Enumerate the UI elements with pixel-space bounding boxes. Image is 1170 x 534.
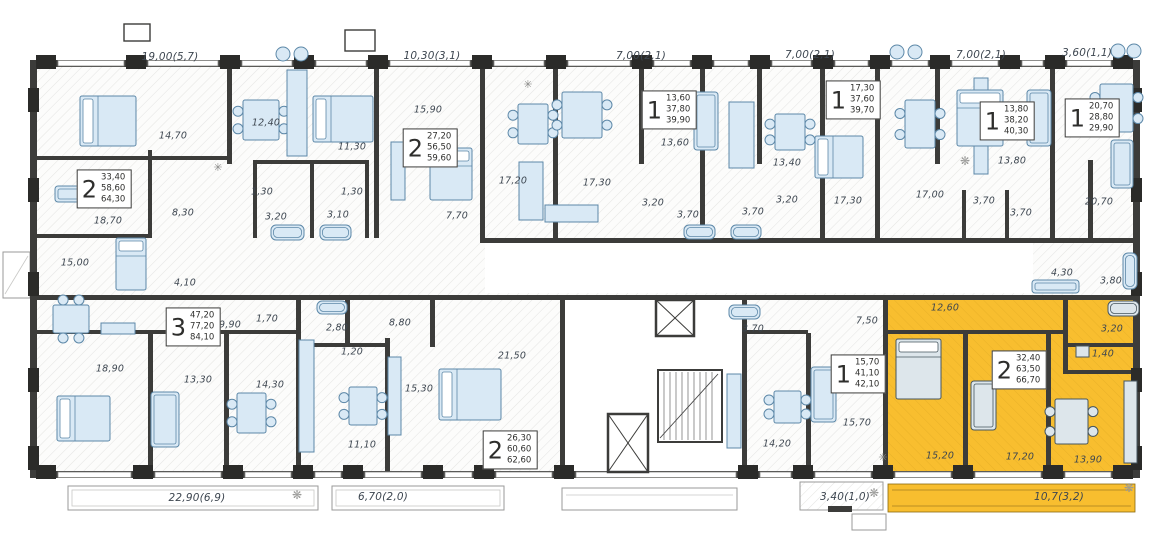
counter xyxy=(388,357,401,435)
counter xyxy=(1124,381,1137,463)
apartment-area-value: 47,20 xyxy=(190,310,214,321)
apartment-stat-box-selected[interactable]: 232,4063,5066,70 xyxy=(992,350,1047,389)
apartment-area-value: 77,20 xyxy=(190,321,214,332)
apartment-areas: 33,4058,6064,30 xyxy=(101,172,125,205)
tub xyxy=(684,225,715,239)
apartment-areas: 13,8038,2040,30 xyxy=(1004,104,1028,137)
selected-apartment-balcony[interactable] xyxy=(888,484,1135,512)
apartment-area-value: 27,20 xyxy=(427,131,451,142)
bed xyxy=(815,136,863,178)
apartment-rooms-count: 2 xyxy=(488,438,503,462)
tub xyxy=(729,305,760,319)
plant-icon: ❋ xyxy=(1124,481,1134,495)
apartment-area-value: 62,60 xyxy=(507,456,531,467)
tub xyxy=(320,225,351,240)
bed xyxy=(80,96,136,146)
apartment-area-value: 40,30 xyxy=(1004,127,1028,138)
sofa xyxy=(1111,140,1133,188)
basin xyxy=(276,47,290,61)
counter xyxy=(729,102,754,168)
apartment-rooms-count: 2 xyxy=(997,358,1012,382)
counter xyxy=(101,323,135,334)
apartment-stat-box[interactable]: 115,7041,1042,10 xyxy=(831,354,886,393)
bed xyxy=(896,339,941,399)
apartment-area-value: 37,60 xyxy=(850,94,874,105)
apartment-area-value: 56,50 xyxy=(427,142,451,153)
apartment-area-value: 28,80 xyxy=(1089,112,1113,123)
bed xyxy=(116,238,146,290)
sofa xyxy=(151,392,179,447)
apartment-area-value: 66,70 xyxy=(1016,376,1040,387)
apartment-rooms-count: 1 xyxy=(836,362,851,386)
tub xyxy=(731,225,761,239)
counter xyxy=(287,70,307,156)
light-icon: ✳ xyxy=(523,78,532,91)
apartment-area-value: 64,30 xyxy=(101,195,125,206)
floor-plan-viewport: ✳✳✳❋❋❋❋ 14,7012,4018,708,3015,001,303,20… xyxy=(0,0,1170,534)
apartment-area-value: 13,80 xyxy=(1004,104,1028,115)
apartment-areas: 32,4063,5066,70 xyxy=(1016,353,1040,386)
apartment-area-value: 38,20 xyxy=(1004,115,1028,126)
apartment-area-value: 32,40 xyxy=(1016,353,1040,364)
counter xyxy=(1076,346,1089,357)
bed xyxy=(57,396,110,441)
apartment-area-value: 84,10 xyxy=(190,333,214,344)
sofa xyxy=(694,92,718,150)
tub xyxy=(317,301,347,314)
apartment-area-value: 63,50 xyxy=(1016,364,1040,375)
apartment-area-value: 26,30 xyxy=(507,433,531,444)
apartment-rooms-count: 1 xyxy=(1070,106,1085,130)
apartment-rooms-count: 2 xyxy=(82,177,97,201)
apartment-stat-box[interactable]: 117,3037,6039,70 xyxy=(826,80,881,119)
light-icon: ✳ xyxy=(878,451,887,464)
sofa xyxy=(1032,280,1079,293)
apartment-rooms-count: 1 xyxy=(647,98,662,122)
apartment-area-value: 13,60 xyxy=(666,93,690,104)
apartment-area-value: 60,60 xyxy=(507,444,531,455)
apartment-area-value: 39,90 xyxy=(666,116,690,127)
apartment-areas: 27,2056,5059,60 xyxy=(427,131,451,164)
apartment-area-value: 33,40 xyxy=(101,172,125,183)
counter xyxy=(545,205,598,222)
apartment-area-value: 17,30 xyxy=(850,83,874,94)
apartment-stat-box[interactable]: 113,6037,8039,90 xyxy=(642,90,697,129)
light-icon: ✳ xyxy=(213,161,222,174)
plant-icon: ❋ xyxy=(292,488,302,502)
apartment-rooms-count: 1 xyxy=(985,109,1000,133)
apartment-area-value: 37,80 xyxy=(666,104,690,115)
apartment-rooms-count: 2 xyxy=(408,136,423,160)
apartment-area-value: 29,90 xyxy=(1089,124,1113,135)
tub xyxy=(1108,301,1139,316)
basin xyxy=(294,47,308,61)
plant-icon: ❋ xyxy=(869,486,879,500)
apartment-area-value: 15,70 xyxy=(855,357,879,368)
basin xyxy=(908,45,922,59)
apartment-area-value: 39,70 xyxy=(850,106,874,117)
bed xyxy=(439,369,501,420)
floor-plan-drawing: ✳✳✳❋❋❋❋ xyxy=(0,0,1170,534)
apartment-stat-box[interactable]: 226,3060,6062,60 xyxy=(483,430,538,469)
apartment-stat-box[interactable]: 233,4058,6064,30 xyxy=(77,169,132,208)
basin xyxy=(890,45,904,59)
apartment-stat-box[interactable]: 120,7028,8029,90 xyxy=(1065,98,1120,137)
apartment-stat-box[interactable]: 113,8038,2040,30 xyxy=(980,101,1035,140)
tub xyxy=(1123,253,1137,289)
tub xyxy=(271,225,304,240)
counter xyxy=(519,162,543,220)
apartment-rooms-count: 3 xyxy=(171,315,186,339)
plant-icon: ❋ xyxy=(960,154,970,168)
apartment-rooms-count: 1 xyxy=(831,88,846,112)
apartment-areas: 17,3037,6039,70 xyxy=(850,83,874,116)
apartment-areas: 20,7028,8029,90 xyxy=(1089,101,1113,134)
bed xyxy=(313,96,373,142)
apartment-areas: 15,7041,1042,10 xyxy=(855,357,879,390)
apartment-areas: 13,6037,8039,90 xyxy=(666,93,690,126)
apartment-area-value: 20,70 xyxy=(1089,101,1113,112)
apartment-area-value: 59,60 xyxy=(427,154,451,165)
basin xyxy=(1127,44,1141,58)
basin xyxy=(1111,44,1125,58)
apartment-areas: 47,2077,2084,10 xyxy=(190,310,214,343)
apartment-area-value: 41,10 xyxy=(855,368,879,379)
apartment-area-value: 58,60 xyxy=(101,183,125,194)
apartment-areas: 26,3060,6062,60 xyxy=(507,433,531,466)
apartment-area-value: 42,10 xyxy=(855,380,879,391)
counter xyxy=(299,340,314,452)
apartment-stat-box[interactable]: 227,2056,5059,60 xyxy=(403,128,458,167)
counter xyxy=(727,374,741,448)
apartment-stat-box[interactable]: 347,2077,2084,10 xyxy=(166,307,221,346)
